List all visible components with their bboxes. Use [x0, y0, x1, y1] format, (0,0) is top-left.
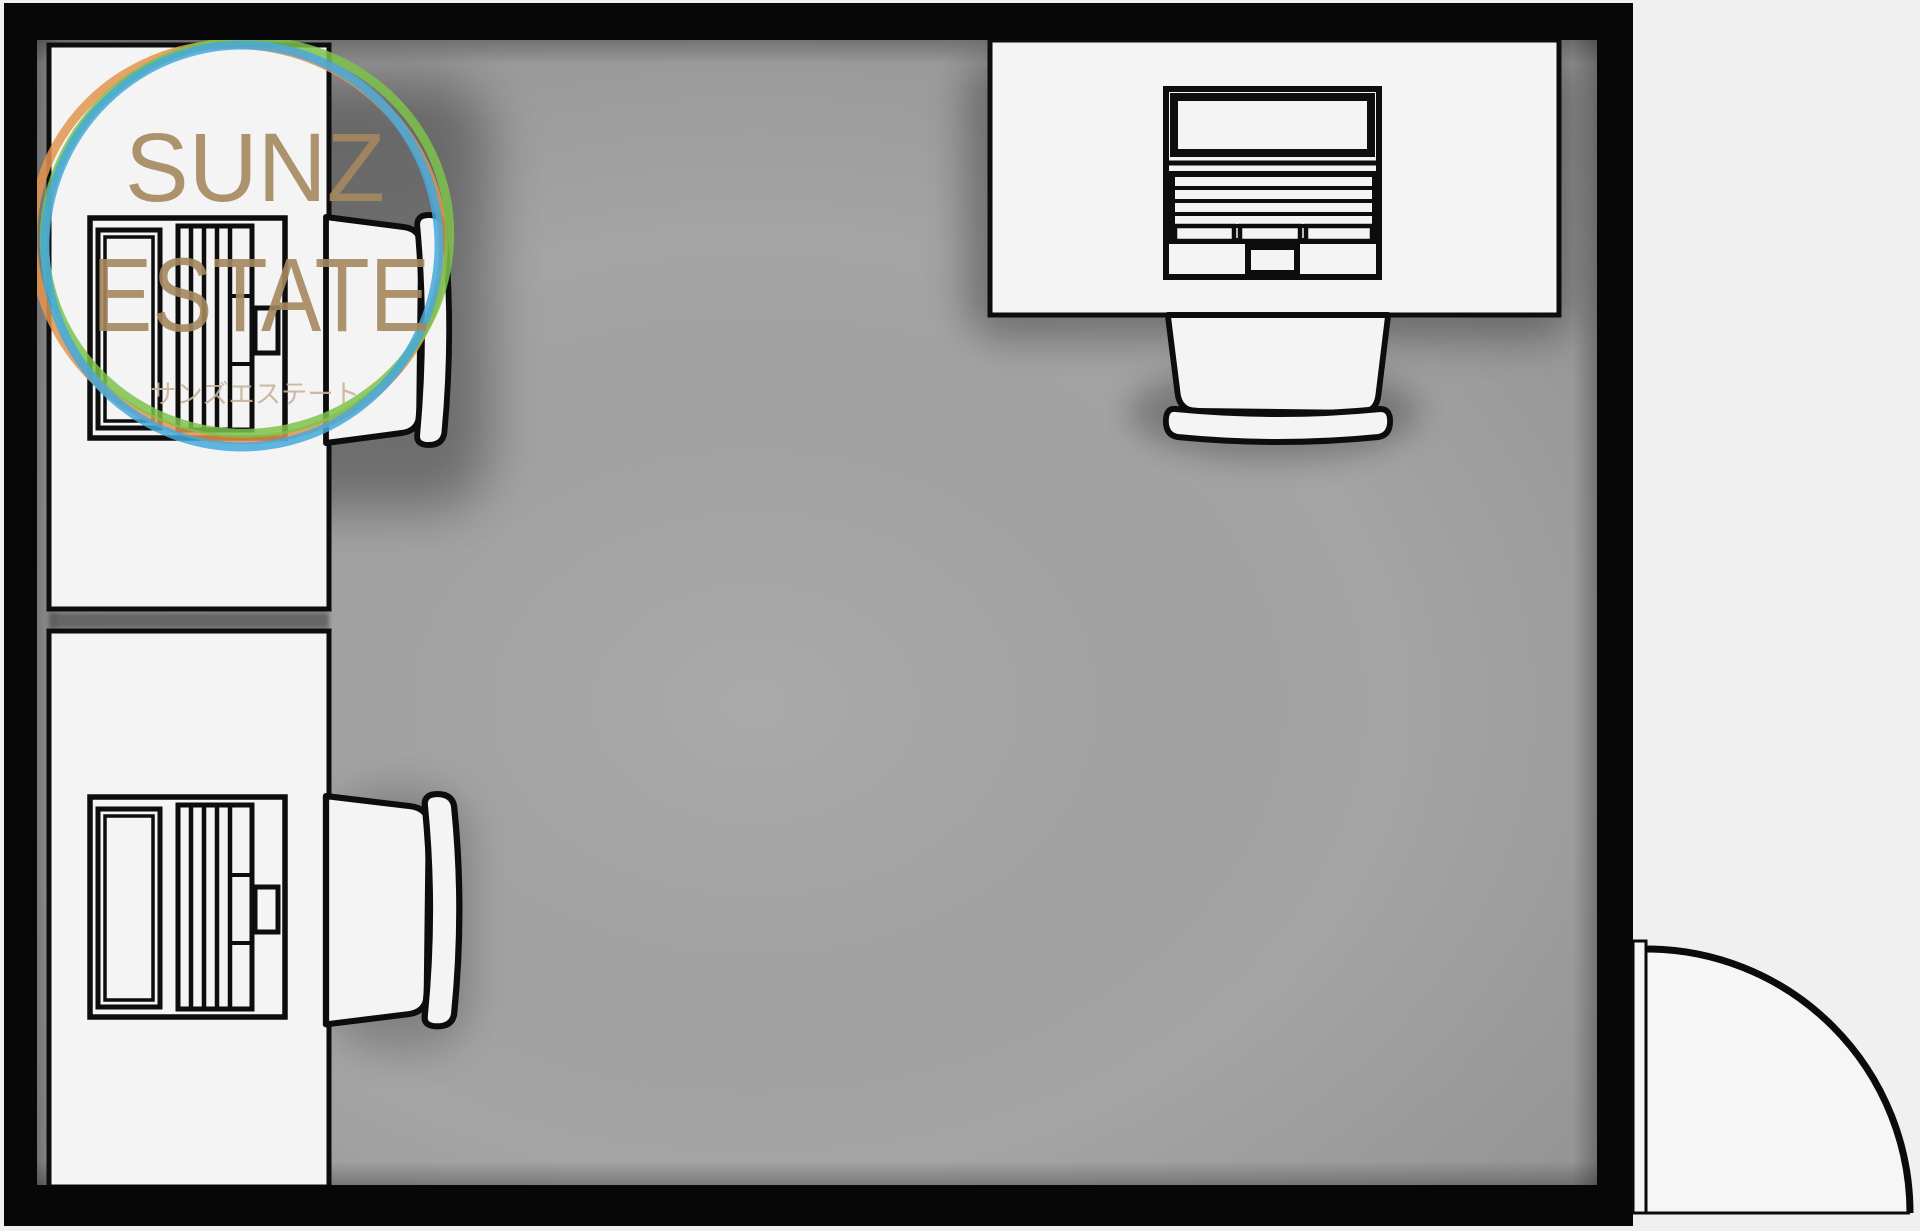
wall-bottom [4, 1185, 1633, 1226]
floor-plan-drawing: SUNZ ESTATE サンズエステート [0, 0, 1920, 1231]
wall-top [4, 3, 1633, 40]
chair-bottom-left [326, 794, 459, 1026]
laptop-icon [1163, 89, 1382, 277]
watermark-kana: サンズエステート [150, 379, 360, 409]
wall-right [1597, 3, 1633, 1226]
door-leaf [1633, 941, 1646, 1213]
watermark-subtitle: ESTATE [92, 237, 430, 354]
wall-left [4, 3, 37, 1226]
chair-top-right [1166, 315, 1390, 442]
watermark-title: SUNZ [125, 113, 385, 222]
floor-plan-page: SUNZ ESTATE サンズエステート [0, 0, 1920, 1231]
